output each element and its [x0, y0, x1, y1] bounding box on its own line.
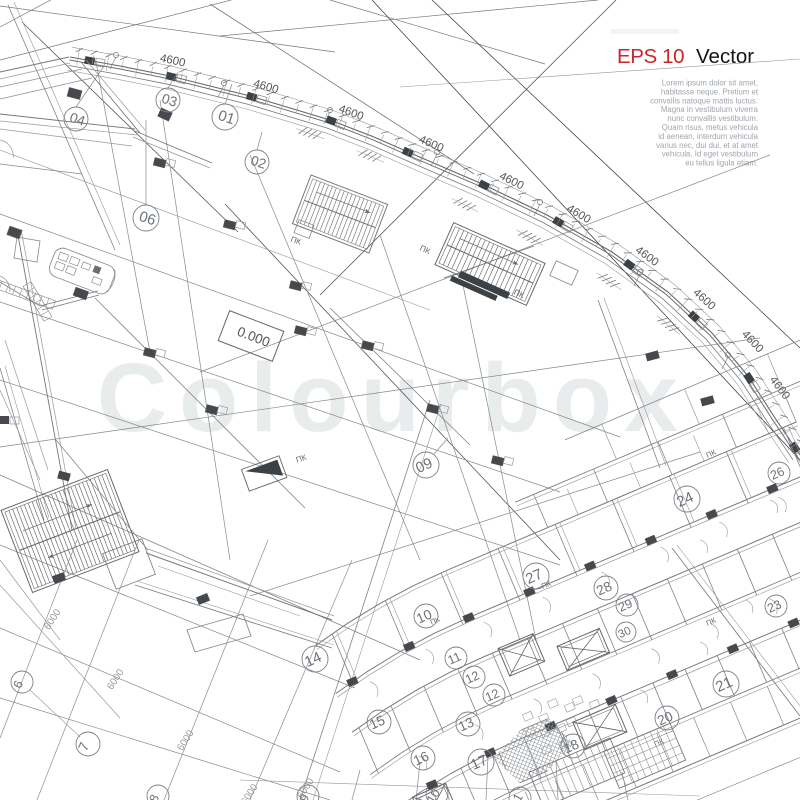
svg-text:nunc convallis vestibulum.: nunc convallis vestibulum. [667, 114, 758, 123]
svg-text:Magna in vestibulum viverra: Magna in vestibulum viverra [661, 105, 759, 114]
svg-text:habitasse neque. Pretium et: habitasse neque. Pretium et [661, 87, 759, 96]
svg-text:Vector: Vector [696, 45, 754, 68]
svg-text:id aenean, interdum vehicula: id aenean, interdum vehicula [658, 132, 758, 141]
svg-text:Lorem ipsum dolor sit amet,: Lorem ipsum dolor sit amet, [662, 79, 758, 88]
svg-text:EPS 10: EPS 10 [617, 45, 684, 68]
svg-text:convallis natoque mattis luctu: convallis natoque mattis luctus. [650, 96, 758, 105]
svg-text:vehicula. Id eget vestibulum: vehicula. Id eget vestibulum [662, 150, 758, 159]
svg-text:eu tellus ligula etiam.: eu tellus ligula etiam. [685, 159, 758, 168]
svg-text:varius nec, dui dui, et at ame: varius nec, dui dui, et at amet [656, 141, 759, 150]
svg-text:Quam risus, metus vehicula: Quam risus, metus vehicula [662, 123, 759, 132]
